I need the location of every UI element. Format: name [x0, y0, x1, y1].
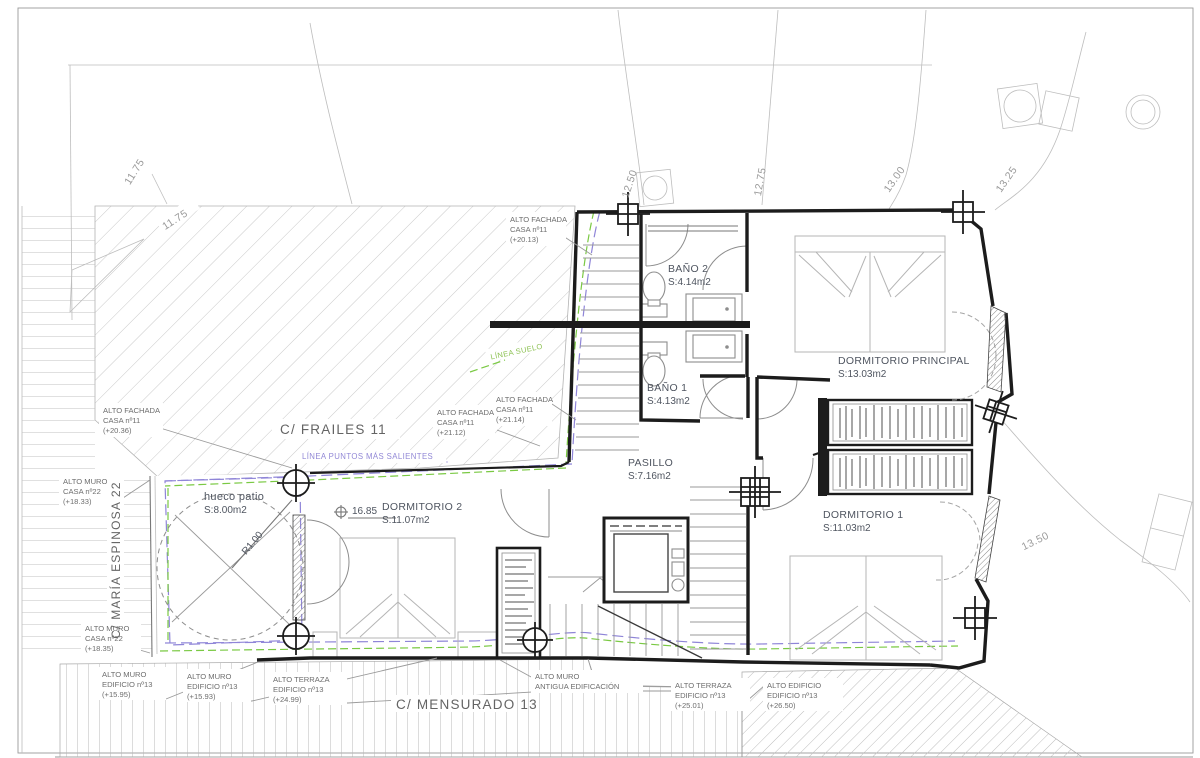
contour-label-13-50: 13.50	[1020, 530, 1051, 553]
annotation-line: CASA nº11	[437, 418, 474, 427]
manhole-square	[1039, 91, 1079, 131]
annotation-line: (+15.93)	[187, 692, 216, 701]
toilet-banio-1	[641, 342, 667, 386]
contour-label-11-75-a: 11.75	[122, 157, 147, 187]
annotation-line: (+18.35)	[85, 644, 114, 653]
contour-label-12-75: 12.75	[752, 167, 769, 197]
annotation-line: ALTO MURO	[85, 624, 130, 633]
annotation-line: (+24.99)	[273, 695, 302, 704]
annotation-line: ALTO FACHADA	[496, 395, 554, 404]
annotation-line: (+15.95)	[102, 690, 131, 699]
room-area-dormitorio-principal: S:13.03m2	[838, 369, 887, 380]
annotation-line: EDIFICIO nº13	[675, 691, 725, 700]
annotation-line: (+21.12)	[437, 428, 466, 437]
annotation-line: ALTO TERRAZA	[273, 675, 330, 684]
annotation-line: ALTO FACHADA	[103, 406, 161, 415]
annotation-line: ALTO MURO	[535, 672, 580, 681]
annotation-line: CASA nº11	[103, 416, 140, 425]
vanity-banio-1	[686, 331, 742, 362]
hatch-street-maria-top	[22, 206, 95, 480]
annotation-line: CASA nº22	[85, 634, 123, 643]
level-value: 16.85	[352, 506, 377, 517]
annotation-line: EDIFICIO nº13	[273, 685, 323, 694]
manhole-double-circle	[1126, 95, 1160, 129]
annotation-line: ALTO MURO	[102, 670, 147, 679]
room-label-dormitorio-1: DORMITORIO 1	[823, 509, 903, 521]
vanity-banio-2	[686, 294, 742, 324]
linea-puntos-label: LÍNEA PUNTOS MÁS SALIENTES	[302, 452, 433, 461]
room-area-hueco-patio: S:8.00m2	[204, 505, 247, 516]
room-label-banio-1: BAÑO 1	[647, 381, 687, 394]
street-label-mensurado: C/ MENSURADO 13	[396, 697, 538, 712]
wardrobe-1	[828, 400, 972, 445]
room-label-banio-2: BAÑO 2	[668, 262, 708, 275]
room-label-dormitorio-principal: DORMITORIO PRINCIPAL	[838, 355, 970, 367]
annotation-line: (+21.14)	[496, 415, 525, 424]
contour-label-12-50: 12.50	[620, 168, 640, 199]
room-label-dormitorio-2: DORMITORIO 2	[382, 501, 462, 513]
floor-plan-page: 16.85 11.75 11.75 12.50 12.75 13.00 13.2…	[0, 0, 1200, 758]
elevator	[604, 518, 688, 602]
annotation-line: (+25.01)	[675, 701, 704, 710]
annotation-line: ANTIGUA EDIFICACIÓN	[535, 682, 619, 691]
annotation-line: EDIFICIO nº13	[187, 682, 237, 691]
floor-plan-canvas: 16.85 11.75 11.75 12.50 12.75 13.00 13.2…	[0, 0, 1200, 758]
room-label-hueco-patio: hueco patio	[204, 491, 264, 503]
contour-label-13-25: 13.25	[994, 164, 1020, 194]
annotation-line: ALTO TERRAZA	[675, 681, 732, 690]
section-wall-band	[490, 321, 750, 328]
annotation-line: (+26.50)	[767, 701, 796, 710]
room-area-dormitorio-2: S:11.07m2	[382, 515, 430, 526]
room-area-banio-2: S:4.14m2	[668, 277, 711, 288]
annotation-line: (+20.36)	[103, 426, 132, 435]
annotation-line: CASA nº11	[496, 405, 533, 414]
annotation-line: ALTO EDIFICIO	[767, 681, 821, 690]
annotation-line: (+20.13)	[510, 235, 539, 244]
manhole-square-circle	[997, 83, 1042, 128]
annotation-line: CASA nº11	[510, 225, 547, 234]
annotation-line: EDIFICIO nº13	[102, 680, 152, 689]
annotation-line: ALTO FACHADA	[437, 408, 495, 417]
street-label-frailes: C/ FRAILES 11	[280, 422, 387, 437]
annotation-line: ALTO MURO	[63, 477, 108, 486]
room-label-pasillo: PASILLO	[628, 457, 673, 469]
room-area-dormitorio-1: S:11.03m2	[823, 523, 871, 534]
annotation-line: ALTO MURO	[187, 672, 232, 681]
street-label-maria-espinosa: C/ MARÍA ESPINOSA 22	[108, 481, 123, 638]
annotation-line: EDIFICIO nº13	[767, 691, 817, 700]
panel-right	[1142, 494, 1192, 570]
toilet-banio-2	[641, 272, 667, 317]
annotation-line: CASA nº22	[63, 487, 101, 496]
annotation-line: ALTO FACHADA	[510, 215, 568, 224]
room-area-pasillo: S:7.16m2	[628, 471, 671, 482]
room-area-banio-1: S:4.13m2	[647, 396, 690, 407]
contour-13-50-line	[1000, 418, 1190, 602]
annotation-line: (+18.33)	[63, 497, 92, 506]
